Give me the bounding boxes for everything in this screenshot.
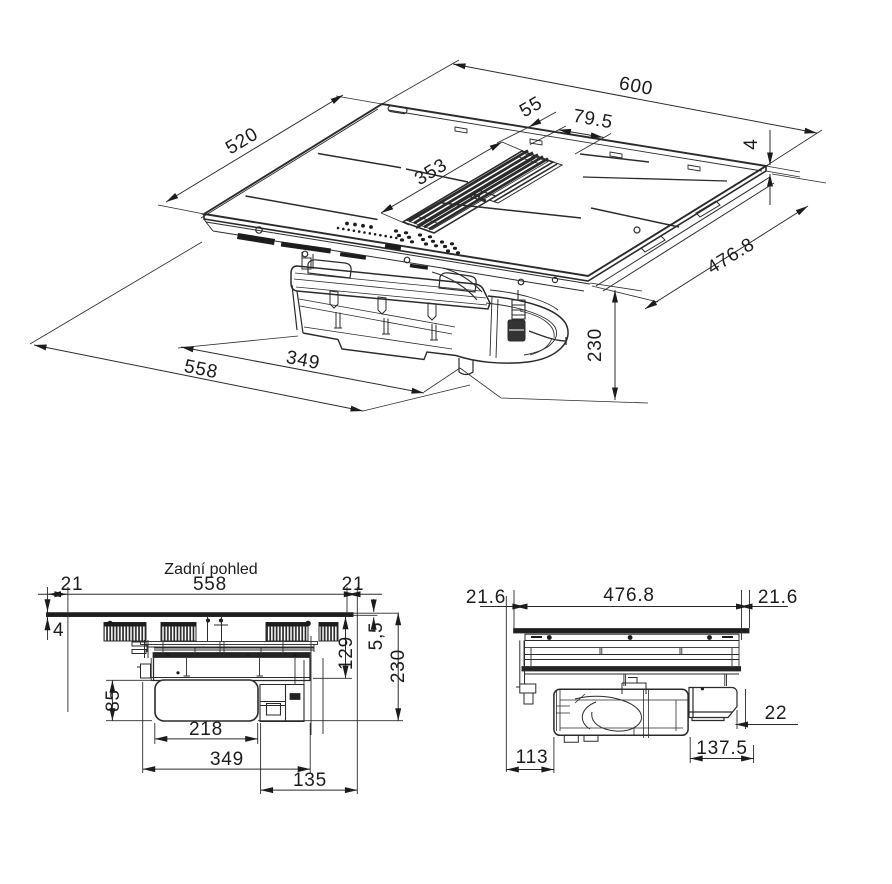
svg-text:137.5: 137.5 xyxy=(696,738,748,759)
svg-text:230: 230 xyxy=(585,328,606,362)
svg-text:129: 129 xyxy=(336,636,357,670)
svg-text:21: 21 xyxy=(342,574,365,595)
svg-text:21.6: 21.6 xyxy=(466,587,506,608)
svg-text:113: 113 xyxy=(516,747,549,768)
svg-text:4: 4 xyxy=(741,138,762,149)
svg-text:5,5: 5,5 xyxy=(366,622,387,651)
svg-text:135: 135 xyxy=(293,770,327,791)
svg-text:218: 218 xyxy=(189,719,223,740)
svg-text:230: 230 xyxy=(388,649,409,683)
svg-text:558: 558 xyxy=(193,574,227,595)
svg-text:21.6: 21.6 xyxy=(758,587,798,608)
svg-text:22: 22 xyxy=(765,703,788,724)
svg-text:476.8: 476.8 xyxy=(603,585,655,606)
svg-text:85: 85 xyxy=(103,689,124,712)
svg-text:349: 349 xyxy=(210,749,244,770)
svg-text:4: 4 xyxy=(53,620,64,641)
svg-text:21: 21 xyxy=(61,574,84,595)
